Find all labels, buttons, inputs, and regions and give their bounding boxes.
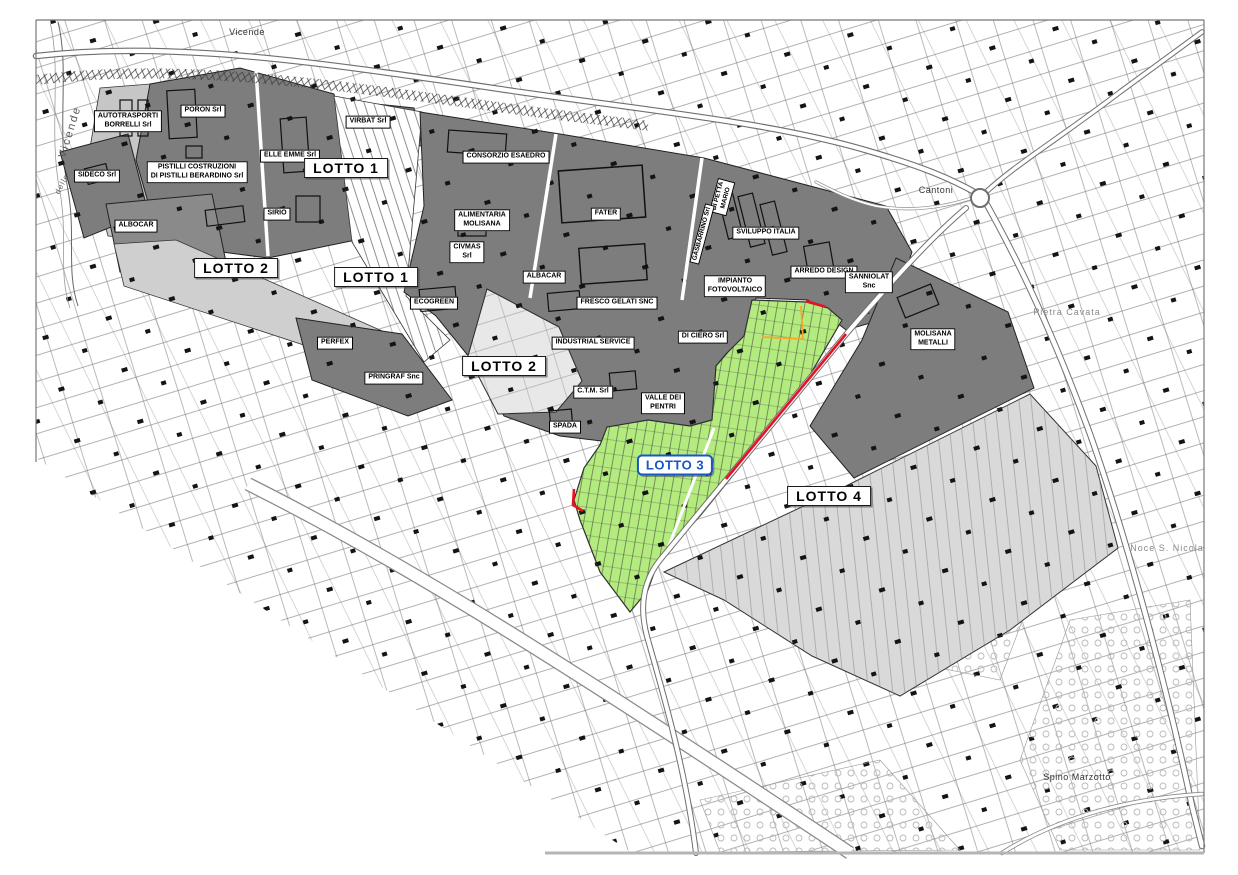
- lotto3-label: LOTTO 3: [637, 455, 713, 476]
- lotto4-label: LOTTO 4: [787, 486, 871, 506]
- molisana-metalli-label: MOLISANAMETALLI: [910, 328, 955, 350]
- sanniolat-label: SANNIOLATSnc: [845, 271, 893, 293]
- delle-label: delle: [53, 172, 71, 196]
- pistilli-costruzioni-label: PISTILLI COSTRUZIONIDI PISTILLI BERARDIN…: [147, 161, 248, 183]
- ecogreen-label: ECOGREEN: [410, 297, 458, 310]
- poron-label: PORON Srl: [181, 105, 226, 118]
- pringraf-label: PRINGRAF Snc: [364, 372, 423, 385]
- noce-s-nicola-label: Noce S. Nicola: [1130, 543, 1204, 553]
- cadastral-map: AUTOTRASPORTIBORRELLI SrlPORON SrlELLE E…: [0, 0, 1238, 875]
- lotto2-b-label: LOTTO 2: [462, 356, 546, 376]
- albacar-label: ALBACAR: [523, 271, 566, 284]
- alimentaria-molisana-label: ALIMENTARIAMOLISANA: [454, 209, 510, 231]
- fater-label: FATER: [591, 208, 621, 221]
- di-ciero-label: DI CIERO Srl: [678, 331, 728, 344]
- valle-dei-pentri-label: VALLE DEIPENTRI: [641, 392, 685, 414]
- spada-label: SPADA: [549, 421, 581, 434]
- gasbarrino-label: GASBARRINO Srl: [689, 203, 714, 264]
- vicende-top-label: Vicende: [229, 27, 265, 37]
- perfex-label: PERFEX: [317, 337, 353, 350]
- sirio-label: SIRIO: [263, 208, 290, 221]
- spino-marzotto-label: Spino Marzotto: [1043, 772, 1111, 782]
- sviluppo-italia-label: SVILUPPO ITALIA: [732, 227, 799, 240]
- lotto1-a-label: LOTTO 1: [304, 158, 388, 178]
- vicende-river-label: Vicende: [56, 105, 83, 160]
- sideco-label: SIDECO Srl: [74, 170, 120, 183]
- cantoni-label: Cantoni: [919, 185, 954, 195]
- virbat-label: VIRBAT Srl: [346, 116, 391, 129]
- lotto2-a-label: LOTTO 2: [194, 258, 278, 278]
- map-labels: AUTOTRASPORTIBORRELLI SrlPORON SrlELLE E…: [0, 0, 1238, 875]
- page: AUTOTRASPORTIBORRELLI SrlPORON SrlELLE E…: [0, 0, 1238, 875]
- albocar-label: ALBOCAR: [115, 220, 158, 233]
- autotrasporti-borrelli-label: AUTOTRASPORTIBORRELLI Srl: [94, 110, 162, 132]
- industrial-service-label: INDUSTRIAL SERVICE: [552, 337, 635, 350]
- civmas-label: CIVMASSrl: [449, 241, 484, 263]
- fresco-gelati-label: FRESCO GELATI SNC: [577, 297, 658, 310]
- lotto1-b-label: LOTTO 1: [334, 267, 418, 287]
- pietra-cavata-label: Pietra Cavata: [1033, 307, 1101, 317]
- impianto-fotovoltaico-label: IMPIANTOFOTOVOLTAICO: [704, 275, 766, 297]
- consorzio-esaedro-label: CONSORZIO ESAEDRO: [463, 151, 550, 164]
- ctm-label: C.T.M. Srl: [573, 386, 613, 399]
